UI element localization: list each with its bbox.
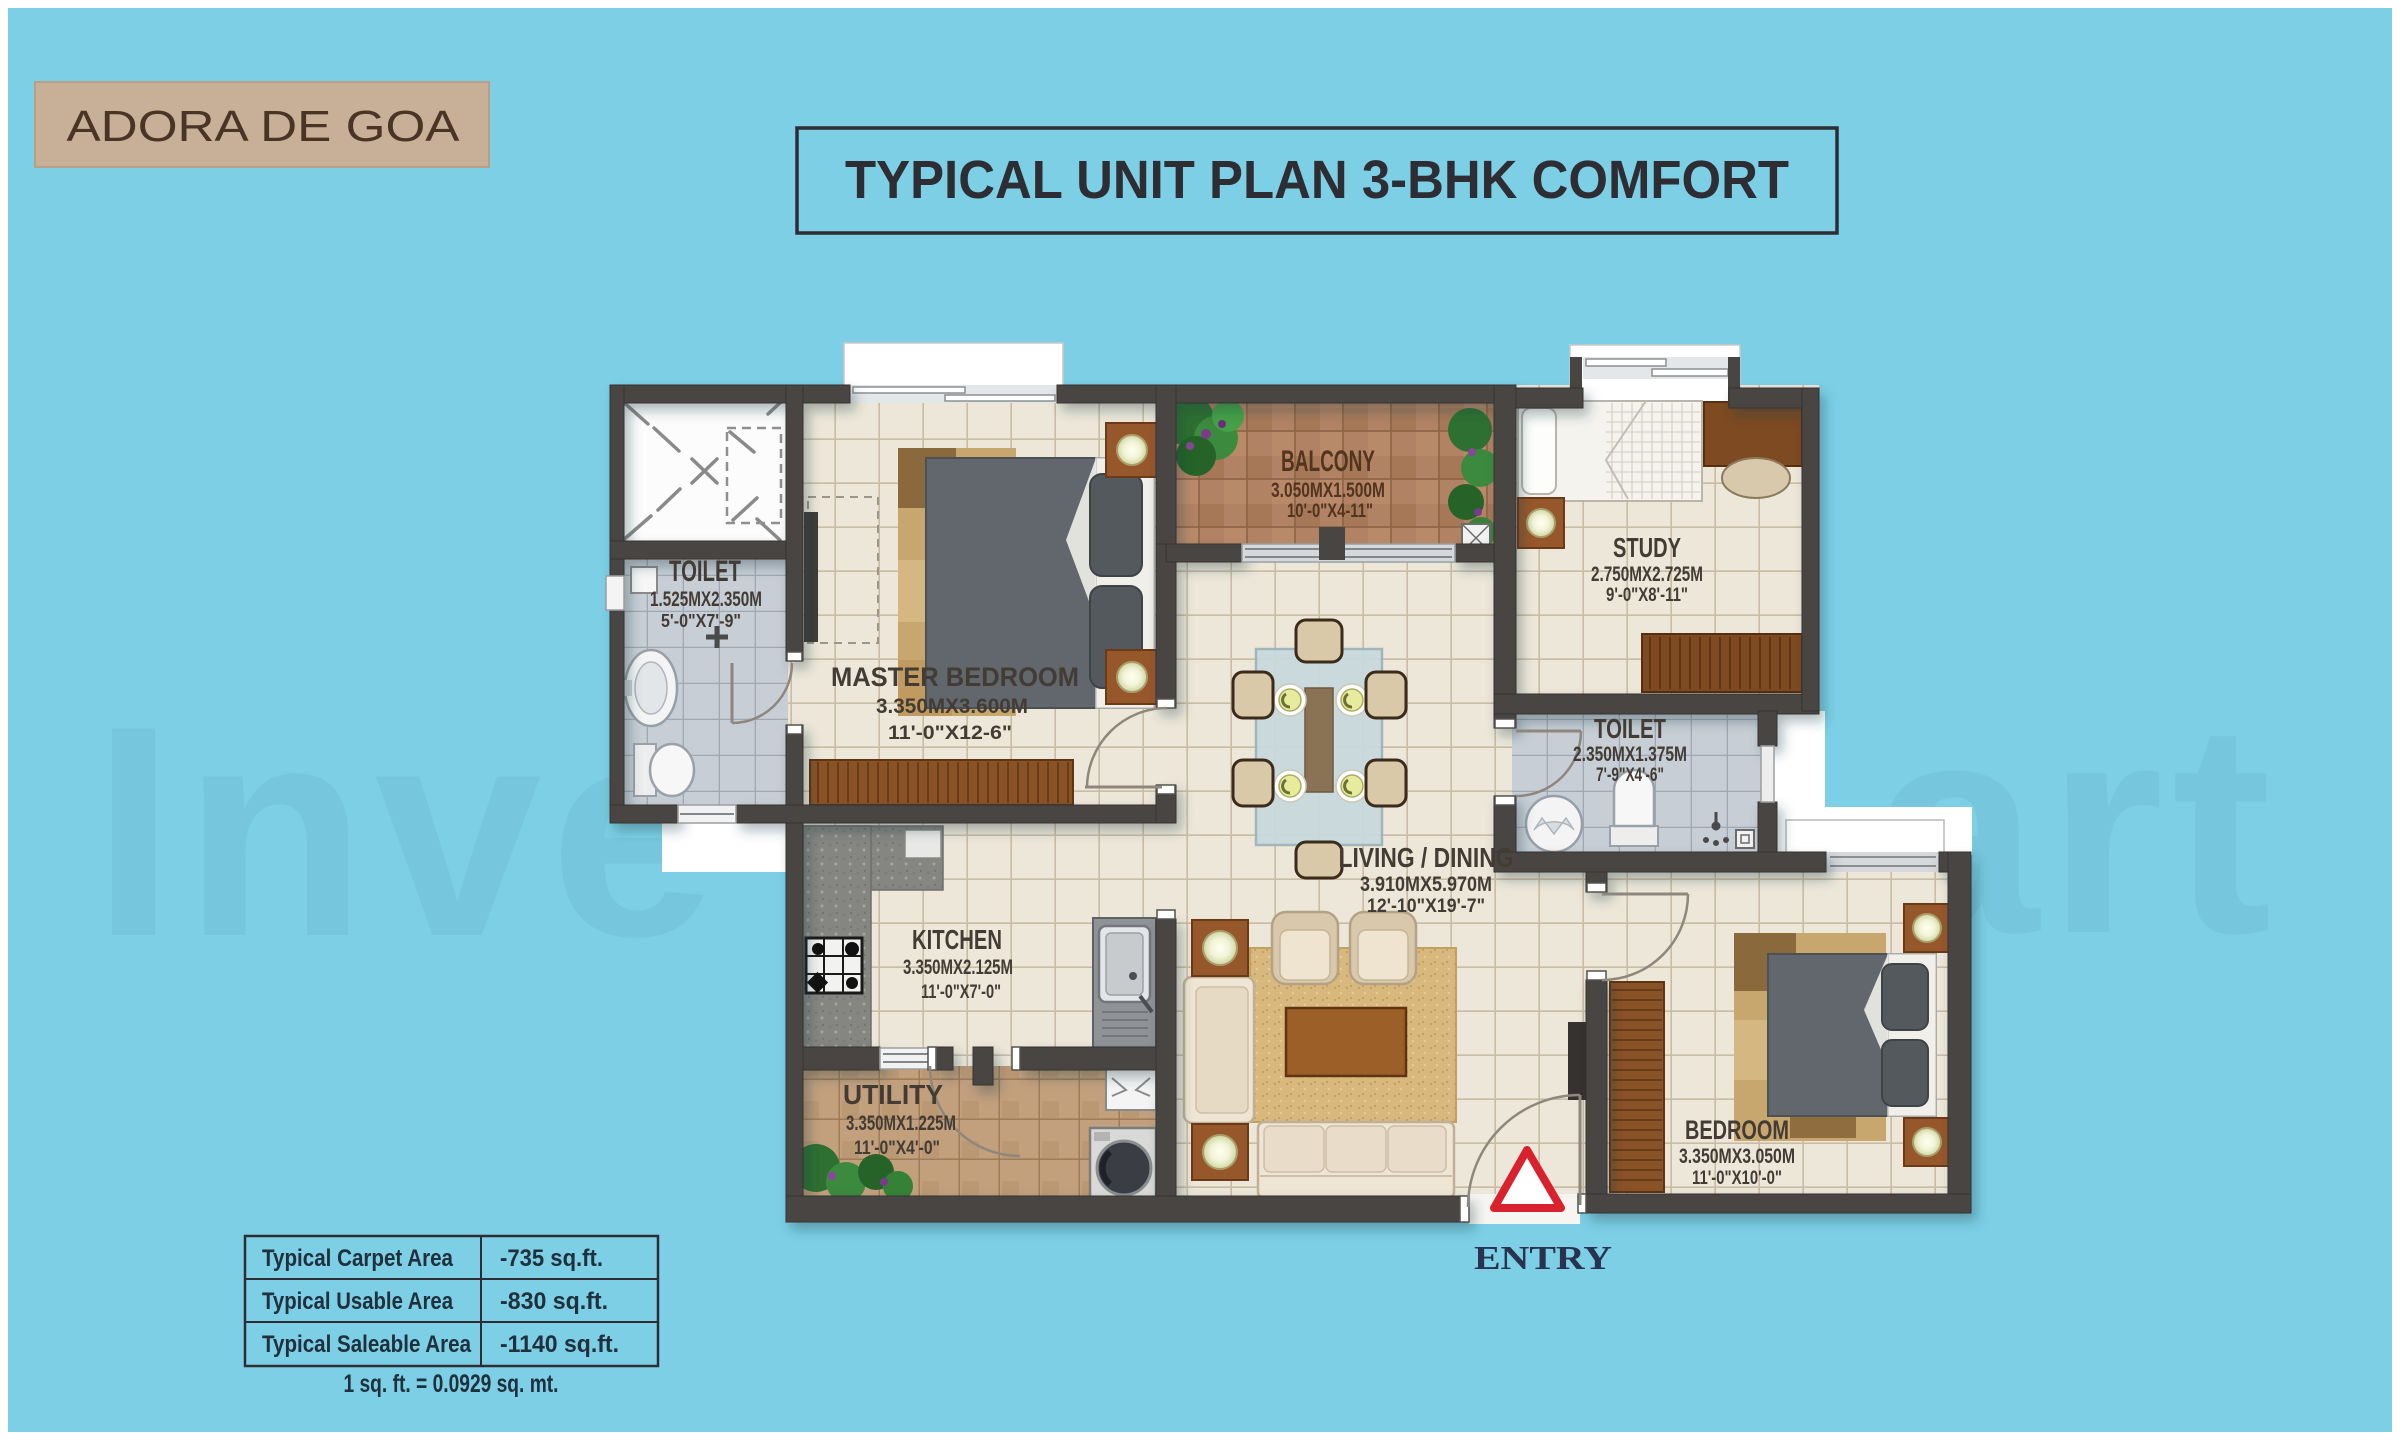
svg-text:1.525MX2.350M: 1.525MX2.350M (650, 588, 762, 611)
svg-text:BALCONY: BALCONY (1281, 445, 1375, 478)
svg-text:STUDY: STUDY (1613, 532, 1681, 563)
svg-text:3.350MX2.125M: 3.350MX2.125M (903, 956, 1013, 979)
svg-text:11'-0"X12-6": 11'-0"X12-6" (888, 723, 1012, 744)
svg-text:TYPICAL UNIT PLAN 3-BHK COMFOR: TYPICAL UNIT PLAN 3-BHK COMFORT (845, 150, 1789, 210)
svg-text:11'-0"X7'-0": 11'-0"X7'-0" (921, 982, 1001, 1003)
svg-text:KITCHEN: KITCHEN (912, 924, 1002, 955)
svg-text:9'-0"X8'-11": 9'-0"X8'-11" (1606, 585, 1688, 606)
svg-text:1 sq. ft. = 0.0929 sq. mt.: 1 sq. ft. = 0.0929 sq. mt. (344, 1370, 559, 1398)
svg-text:12'-10"X19'-7": 12'-10"X19'-7" (1367, 896, 1485, 917)
svg-text:LIVING / DINING: LIVING / DINING (1339, 842, 1514, 873)
svg-text:MASTER BEDROOM: MASTER BEDROOM (831, 662, 1079, 692)
svg-text:ENTRY: ENTRY (1474, 1240, 1612, 1277)
svg-text:BEDROOM: BEDROOM (1685, 1115, 1789, 1145)
svg-text:10'-0"X4-11": 10'-0"X4-11" (1287, 501, 1373, 522)
svg-text:-735 sq.ft.: -735 sq.ft. (500, 1245, 603, 1272)
svg-text:3.050MX1.500M: 3.050MX1.500M (1271, 479, 1385, 502)
svg-text:11'-0"X10'-0": 11'-0"X10'-0" (1692, 1168, 1782, 1189)
svg-text:3.350MX1.225M: 3.350MX1.225M (846, 1112, 956, 1135)
svg-text:5'-0"X7'-9": 5'-0"X7'-9" (661, 611, 741, 631)
svg-text:3.350MX3.600M: 3.350MX3.600M (876, 695, 1028, 718)
svg-text:-1140 sq.ft.: -1140 sq.ft. (500, 1331, 619, 1358)
svg-text:UTILITY: UTILITY (843, 1079, 943, 1110)
svg-text:2.750MX2.725M: 2.750MX2.725M (1591, 563, 1703, 586)
svg-text:Typical Carpet Area: Typical Carpet Area (262, 1245, 454, 1272)
svg-text:ADORA DE GOA: ADORA DE GOA (67, 102, 461, 151)
svg-text:7'-9"X4'-6": 7'-9"X4'-6" (1596, 765, 1664, 786)
svg-text:Typical Usable Area: Typical Usable Area (262, 1288, 454, 1315)
svg-text:3.910MX5.970M: 3.910MX5.970M (1360, 873, 1492, 896)
svg-text:TOILET: TOILET (1594, 713, 1666, 744)
svg-text:3.350MX3.050M: 3.350MX3.050M (1679, 1145, 1795, 1168)
svg-text:11'-0"X4'-0": 11'-0"X4'-0" (854, 1138, 940, 1159)
svg-text:2.350MX1.375M: 2.350MX1.375M (1573, 743, 1687, 766)
svg-text:Typical Saleable Area: Typical Saleable Area (262, 1331, 472, 1358)
svg-text:-830 sq.ft.: -830 sq.ft. (500, 1288, 608, 1315)
svg-text:TOILET: TOILET (669, 555, 741, 588)
